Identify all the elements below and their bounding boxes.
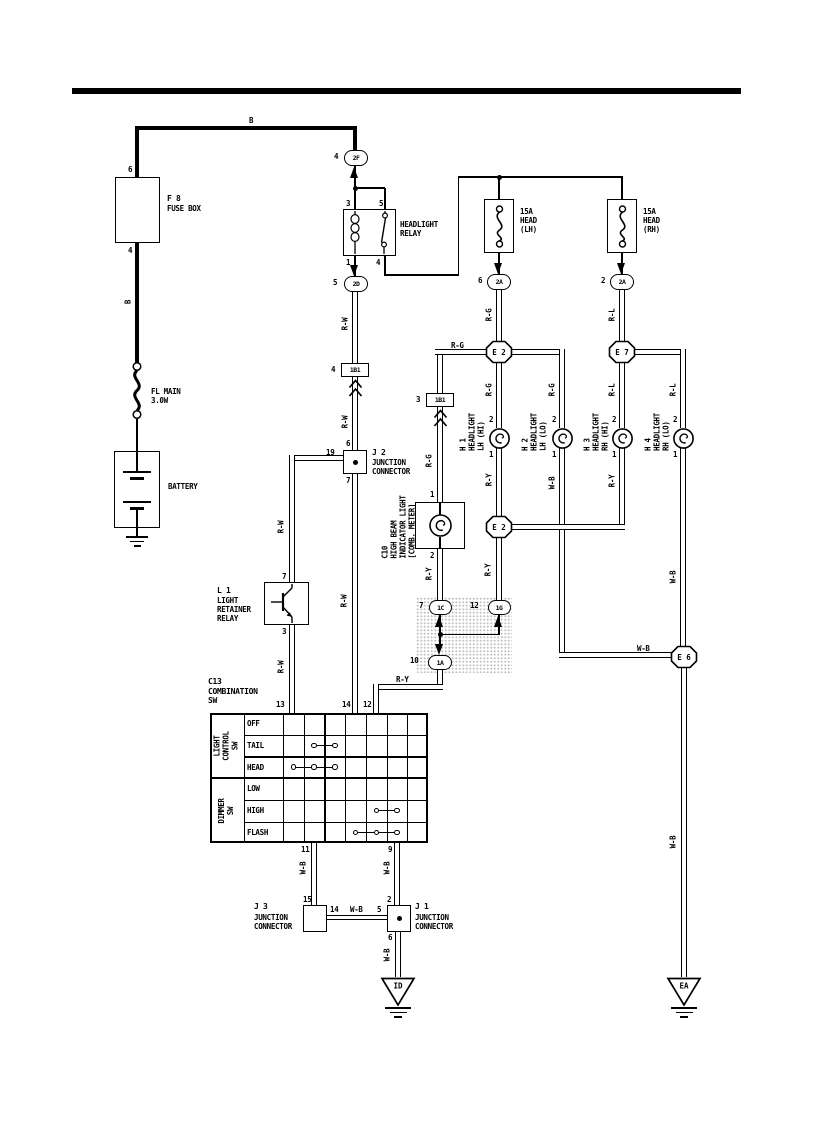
wire-ry <box>496 538 501 600</box>
headlight-h4-label: H 4 HEADLIGHT RH (LO) <box>645 413 672 451</box>
pin-label: 3 <box>282 627 286 636</box>
wire <box>439 634 499 635</box>
connector-code: 2A <box>619 278 626 286</box>
pin-label: 1 <box>673 450 677 459</box>
pin-label: 11 <box>301 845 309 854</box>
bulb-h2-icon <box>551 427 574 450</box>
ground-code: ID <box>393 982 403 991</box>
ground-symbol <box>390 1012 407 1014</box>
wire-label: W-B <box>384 862 393 875</box>
wire-label: R-L <box>670 384 679 397</box>
component-name: FL MAIN <box>151 387 181 396</box>
ground-symbol <box>385 1007 411 1009</box>
connector-1b1-b: 1B1 <box>426 393 454 407</box>
component-label: JUNCTION CONNECTOR <box>415 913 453 931</box>
ground-ea: EA <box>666 977 702 1007</box>
chevron-up-icon <box>433 409 448 428</box>
wire-label: R-G <box>549 384 558 397</box>
connector-code: 2F <box>353 154 360 162</box>
component-label: 3.0W <box>151 396 168 405</box>
junction-connector-j3 <box>303 905 327 932</box>
connector-1c: 1C <box>429 600 452 615</box>
wire-b <box>353 126 358 151</box>
wire-label: R-W <box>341 595 350 608</box>
ground-symbol <box>671 1007 697 1009</box>
bulb-h1-icon <box>488 427 511 450</box>
wire-wb <box>395 932 400 977</box>
wire-rg <box>496 363 501 428</box>
battery-cell <box>136 451 137 471</box>
headlight-h2-label: H 2 HEADLIGHT LH (LO) <box>522 413 549 451</box>
connector-code: 1A <box>437 659 444 667</box>
wire-label: R-G <box>486 384 495 397</box>
pin-label: 2 <box>430 551 434 560</box>
wire-label: W-B <box>549 477 558 490</box>
switch-row-label: TAIL <box>247 741 264 750</box>
component-label: FUSE BOX <box>167 204 201 213</box>
wire-rl <box>619 363 624 428</box>
contact-point <box>394 808 400 814</box>
wire-label: W-B <box>670 571 679 584</box>
pin-label: 2 <box>552 415 556 424</box>
chevron-up-icon <box>348 379 363 398</box>
contact-point <box>311 764 317 770</box>
wire-label-b: B <box>125 300 134 304</box>
splice-code: E 6 <box>677 653 691 662</box>
wire-label: R-W <box>342 416 351 429</box>
splice-e2-upper: E 2 <box>485 340 513 364</box>
pin-label: 10 <box>410 656 418 665</box>
contact-point <box>311 743 317 749</box>
wire-rw <box>289 455 294 582</box>
ground-symbol <box>130 541 144 543</box>
pin-label: 2 <box>673 415 677 424</box>
component-name: J 3 <box>254 902 268 912</box>
switch-group-label: LIGHT CONTROL SW <box>214 731 241 761</box>
splice-e2-lower: E 2 <box>485 515 513 539</box>
wire-label: W-B <box>670 836 679 849</box>
pin-label: 2 <box>601 276 605 285</box>
wire-label: R-Y <box>486 474 495 487</box>
component-name: F 8 <box>167 194 181 204</box>
switch-row-label: OFF <box>247 719 260 728</box>
splice-code: E 7 <box>615 348 629 357</box>
arrow-down-icon <box>350 265 358 276</box>
pin-label: 15 <box>303 895 311 904</box>
wire <box>439 537 440 549</box>
pin-label: 3 <box>346 199 350 208</box>
pin-label: 6 <box>346 439 350 448</box>
pin-label: 9 <box>388 845 392 854</box>
pin-label: 6 <box>478 276 482 285</box>
wire-label: R-Y <box>396 675 409 684</box>
wire <box>621 177 622 199</box>
arrow-up-icon <box>494 616 502 627</box>
connector-1b1-a: 1B1 <box>341 363 369 377</box>
wire-label: R-Y <box>609 475 618 488</box>
wire-label: R-G <box>426 455 435 468</box>
contact-point <box>332 743 338 749</box>
arrow-down-icon <box>494 263 502 274</box>
wire-ry <box>496 448 501 516</box>
pin-label: 6 <box>128 165 132 174</box>
relay-internals <box>345 211 394 254</box>
fusible-link-symbol <box>130 362 144 419</box>
connector-code: 1G <box>496 604 503 612</box>
connector-code: 1C <box>437 604 444 612</box>
wire-wb <box>681 668 686 977</box>
junction-dot <box>497 175 502 180</box>
contact-point <box>374 830 380 836</box>
wire-rl <box>680 349 685 428</box>
pin-label: 1 <box>489 450 493 459</box>
ground-symbol <box>136 528 137 536</box>
grid-line <box>244 800 428 801</box>
connector-1g: 1G <box>488 600 511 615</box>
wire <box>355 187 385 188</box>
component-label: JUNCTION CONNECTOR <box>372 458 410 476</box>
headlight-h3-label: H 3 HEADLIGHT RH (HI) <box>584 413 611 451</box>
connector-2f: 2F <box>344 150 368 166</box>
wire-label: R-W <box>278 521 287 534</box>
wire-rg <box>511 349 565 354</box>
arrow-down-icon <box>617 263 625 274</box>
wire-rg <box>437 349 442 393</box>
connector-code: 1B1 <box>350 366 360 374</box>
battery-cell <box>136 510 137 528</box>
connector-2a-rh: 2A <box>610 274 634 290</box>
wire-wb <box>559 652 672 657</box>
ground-symbol <box>394 1016 402 1018</box>
wire-ry <box>373 684 442 689</box>
wire <box>384 274 458 275</box>
pin-label: 4 <box>334 152 338 161</box>
arrow-up-icon <box>435 616 443 627</box>
arrow-up-icon <box>350 167 358 178</box>
wire-label: W-B <box>384 949 393 962</box>
connector-code: 2D <box>353 280 360 288</box>
wire-rg <box>496 290 501 341</box>
component-label: JUNCTION CONNECTOR <box>254 913 292 931</box>
component-label: LIGHT RETAINER RELAY <box>217 596 251 623</box>
component-name: C13 COMBINATION SW <box>208 677 258 706</box>
wire-ry <box>373 684 378 713</box>
pin-label: 2 <box>489 415 493 424</box>
wire-rl <box>634 349 686 354</box>
wire-b <box>135 128 140 177</box>
component-name: J 1 <box>415 902 429 912</box>
ground-id: ID <box>380 977 416 1007</box>
connector-2d: 2D <box>344 276 368 292</box>
ground-symbol <box>134 545 141 547</box>
wire-rw <box>352 474 357 713</box>
wire-rw <box>289 625 294 713</box>
wire <box>384 188 385 209</box>
grid-line <box>244 756 428 757</box>
wire-label: W-B <box>350 905 363 914</box>
component-label: 15A HEAD (RH) <box>643 207 660 234</box>
switch-row-label: HIGH <box>247 806 264 815</box>
pin-label: 13 <box>276 700 284 709</box>
wire-label: R-W <box>342 318 351 331</box>
wire-rw <box>352 291 357 363</box>
fuse-symbol-lh <box>486 201 513 252</box>
ground-symbol <box>676 1012 693 1014</box>
wire <box>458 177 459 276</box>
wire-label: R-L <box>609 384 618 397</box>
switch-group-label: DIMMER SW <box>218 798 236 823</box>
wire-rg <box>435 349 487 354</box>
wire-b <box>135 243 140 363</box>
wire <box>384 256 385 276</box>
pin-label: 1 <box>612 450 616 459</box>
headlight-wiring-diagram: 2F 2D 2A 2A 1B1 1B1 1C 1G 1A E 2 E 7 E 2… <box>0 0 816 1123</box>
wire-wb <box>327 915 387 920</box>
switch-row-label: HEAD <box>247 763 264 772</box>
pin-label: 14 <box>342 700 350 709</box>
battery-cell <box>123 471 151 473</box>
wire-wb <box>559 448 564 658</box>
pin-label: 3 <box>416 395 420 404</box>
indicator-bulb-icon <box>428 513 453 538</box>
headlight-h1-label: H 1 HEADLIGHT LH (HI) <box>460 413 487 451</box>
wire-label: W-B <box>637 644 650 653</box>
connector-code: 1B1 <box>435 396 445 404</box>
junction-dot <box>397 916 402 921</box>
pin-label: 1 <box>346 258 350 267</box>
pin-label: 1 <box>430 490 434 499</box>
pin-label: 4 <box>331 365 335 374</box>
component-label: BATTERY <box>168 482 198 491</box>
pin-label: 12 <box>363 700 371 709</box>
wire-label: W-B <box>300 862 309 875</box>
junction-dot <box>353 186 358 191</box>
pin-label: 6 <box>388 933 392 942</box>
wire-rl <box>619 290 624 341</box>
transistor-symbol <box>266 584 307 623</box>
grid-line <box>244 735 428 736</box>
wire-label: R-G <box>451 341 464 350</box>
grid-line <box>244 822 428 823</box>
grid-line <box>210 777 428 779</box>
component-label: HEADLIGHT RELAY <box>400 220 438 238</box>
battery-cell <box>123 501 151 503</box>
fuse-symbol-rh <box>609 201 636 252</box>
wire-ry <box>511 524 625 529</box>
ground-code: EA <box>679 982 689 991</box>
fuse-box <box>115 177 160 243</box>
connector-code: 2A <box>496 278 503 286</box>
pin-label: 14 <box>330 905 338 914</box>
switch-row-label: LOW <box>247 784 260 793</box>
wire-wb <box>311 843 316 905</box>
wire-rg <box>559 349 564 428</box>
wire-wb <box>680 448 685 646</box>
wire-label: R-G <box>486 309 495 322</box>
component-name: L 1 <box>217 586 231 596</box>
pin-label: 5 <box>377 905 381 914</box>
pin-label: 19 <box>326 448 334 457</box>
wire-label: R-Y <box>485 564 494 577</box>
ground-symbol <box>126 536 148 538</box>
wire <box>498 177 499 199</box>
wire-label: R-L <box>609 309 618 322</box>
ground-symbol <box>680 1016 688 1018</box>
wire-ry <box>619 448 624 530</box>
wire-label: R-W <box>278 661 287 674</box>
contact-point <box>291 764 297 770</box>
bulb-h3-icon <box>611 427 634 450</box>
pin-label: 1 <box>552 450 556 459</box>
wire-rw <box>289 455 345 460</box>
wire-b <box>135 126 358 131</box>
splice-e7: E 7 <box>608 340 636 364</box>
pin-label: 5 <box>379 199 383 208</box>
wire-label-b: B <box>249 116 253 125</box>
battery-cell <box>130 477 144 480</box>
wire-label: R-Y <box>426 568 435 581</box>
arrow-down-icon <box>435 644 443 655</box>
pin-label: 4 <box>128 246 132 255</box>
contact-point <box>394 830 400 836</box>
wire <box>458 176 624 177</box>
junction-dot <box>353 460 358 465</box>
component-label: 15A HEAD (LH) <box>520 207 537 234</box>
wire <box>136 419 137 451</box>
high-beam-indicator-label: C10 HIGH BEAM INDICATOR LIGHT [COMB. MET… <box>381 495 416 558</box>
connector-2a-lh: 2A <box>487 274 511 290</box>
pin-label: 5 <box>333 278 337 287</box>
pin-label: 7 <box>419 601 423 610</box>
wire-ry <box>437 549 442 600</box>
pin-label: 2 <box>612 415 616 424</box>
contact-point <box>332 764 338 770</box>
bulb-h4-icon <box>672 427 695 450</box>
pin-label: 7 <box>346 476 350 485</box>
switch-row-label: FLASH <box>247 828 268 837</box>
pin-label: 12 <box>470 601 478 610</box>
splice-code: E 2 <box>492 348 506 357</box>
wire-wb <box>394 843 399 905</box>
junction-dot <box>438 632 443 637</box>
splice-e6: E 6 <box>670 645 698 669</box>
pin-label: 4 <box>376 258 380 267</box>
splice-code: E 2 <box>492 523 506 532</box>
page-rule <box>72 88 741 94</box>
component-name: J 2 <box>372 448 386 458</box>
pin-label: 2 <box>387 895 391 904</box>
pin-label: 7 <box>282 572 286 581</box>
connector-1a: 1A <box>428 655 452 670</box>
